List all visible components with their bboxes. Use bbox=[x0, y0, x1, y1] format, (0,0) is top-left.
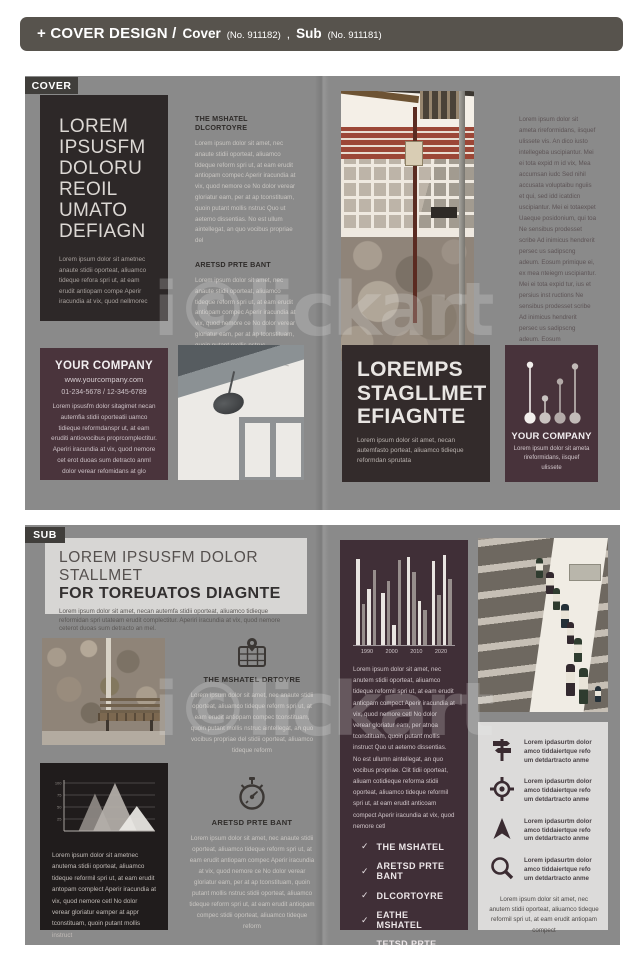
photo-window bbox=[239, 417, 304, 480]
header-cover-label: Cover bbox=[182, 26, 220, 41]
icon-text-row: Lorem ipdasurtm dolor amco tiddaiertque … bbox=[489, 776, 599, 804]
svg-text:25: 25 bbox=[57, 817, 62, 822]
title-line: EFIAGNTE bbox=[357, 405, 490, 429]
section-heading: ARETSD PRTE BANT bbox=[195, 260, 301, 269]
sub-header-body: Lorem ipsum dolor sit amet, necan autemf… bbox=[59, 608, 293, 634]
header-separator: , bbox=[287, 27, 290, 41]
magnifier-icon bbox=[489, 855, 515, 881]
company-name: YOUR COMPANY bbox=[40, 360, 168, 372]
loremps-body: Lorem ipsum dolor sit amet, necan autemf… bbox=[357, 436, 475, 466]
section-heading: ARETSD PRTE BANT bbox=[182, 818, 322, 827]
icon-row-text: Lorem ipdasurtm dolor amco tiddaiertque … bbox=[524, 855, 599, 883]
lollipop-chart-icon bbox=[521, 354, 583, 428]
company-body: Lorem ipsum dolor sit ameta rireformidan… bbox=[505, 445, 598, 473]
svg-text:100: 100 bbox=[55, 781, 62, 786]
photo-stone-block-wall bbox=[341, 159, 474, 231]
photo-rock-foundation bbox=[341, 237, 474, 361]
company-name: YOUR COMPANY bbox=[505, 431, 598, 442]
photo-plaque bbox=[569, 564, 601, 581]
title-line: UMATO bbox=[59, 200, 168, 221]
title-line: LOREM bbox=[59, 116, 168, 137]
checklist-item: ✓ EATHE MSHATEL bbox=[361, 910, 455, 930]
check-icon: ✓ bbox=[361, 944, 369, 945]
sub-bar-chart: 1990200020102020 bbox=[353, 554, 455, 655]
checklist-item: ✓ THE MSHATEL bbox=[361, 841, 455, 852]
checklist-item: ✓ DLCORTOYRE bbox=[361, 890, 455, 901]
right-panel-footer: Lorem ipsum dolor sit amet, nec anutem s… bbox=[489, 895, 599, 937]
photo-bottle bbox=[566, 664, 575, 696]
checklist-label: TETSD PRTE BANT bbox=[377, 939, 455, 945]
checklist-label: EATHE MSHATEL bbox=[377, 910, 455, 930]
checklist-label: ARETSD PRTE BANT bbox=[377, 861, 455, 881]
header-bar: + COVER DESIGN / Cover (No. 911182) , Su… bbox=[20, 17, 623, 51]
photo-bottle bbox=[579, 668, 588, 704]
template-preview-page: + COVER DESIGN / Cover (No. 911182) , Su… bbox=[0, 0, 640, 958]
sub-right-panel: Lorem ipdasurtm dolor amco tiddaiertque … bbox=[478, 722, 608, 930]
page-fold bbox=[315, 76, 329, 510]
cover-spread: i©lickart LOREM IPSUSFM DOLORU REOIL UMA… bbox=[25, 76, 620, 510]
header-sub-number: (No. 911181) bbox=[328, 30, 382, 41]
check-icon: ✓ bbox=[361, 915, 369, 926]
cover-tab-label: COVER bbox=[25, 77, 78, 94]
signpost-icon bbox=[489, 737, 515, 763]
title-line: REOIL bbox=[59, 179, 168, 200]
navigation-arrow-icon bbox=[489, 816, 515, 842]
company-url: www.yourcompany.com bbox=[40, 375, 168, 384]
check-icon: ✓ bbox=[361, 841, 369, 852]
stone-wall-bench-photo bbox=[42, 638, 165, 745]
sub-title-line1: LOREM IPSUSFM DOLOR STALLMET bbox=[59, 549, 293, 585]
photo-bench-back bbox=[100, 698, 160, 713]
photo-bottle bbox=[567, 622, 574, 644]
sub-header-box: LOREM IPSUSFM DOLOR STALLMET FOR TOREUAT… bbox=[45, 538, 307, 614]
title-line: IPSUSFM bbox=[59, 137, 168, 158]
stopwatch-icon bbox=[235, 776, 269, 812]
svg-text:50: 50 bbox=[57, 805, 62, 810]
sub-title-line2: FOR TOREUATOS DIAGNTE bbox=[59, 585, 293, 603]
photo-utility-pole bbox=[459, 91, 465, 361]
loremps-panel: LOREMPS STAGLLMET EFIAGNTE Lorem ipsum d… bbox=[342, 345, 490, 482]
chart-panel-body: Lorem ipsum dolor sit ametnec anutema st… bbox=[49, 850, 159, 941]
bar-chart-bars bbox=[353, 554, 455, 646]
map-section: THE MSHATEL DRTOYRE Lorem ipsum dolor si… bbox=[182, 637, 322, 756]
icon-row-text: Lorem ipdasurtm dolor amco tiddaiertque … bbox=[524, 816, 599, 844]
sub-middle-column: THE MSHATEL DRTOYRE Lorem ipsum dolor si… bbox=[182, 637, 322, 932]
triangle-chart-panel: 100755025 Lorem ipsum dolor sit ametnec … bbox=[40, 763, 168, 930]
photo-ground bbox=[42, 731, 165, 745]
company-info-panel: YOUR COMPANY www.yourcompany.com 01-234-… bbox=[40, 348, 168, 480]
photo-plaque bbox=[431, 207, 457, 218]
checklist-label: THE MSHATEL bbox=[377, 842, 445, 852]
company-body: Lorem ipsusfm dolor sitagimet necan aute… bbox=[40, 402, 168, 478]
header-cover-number: (No. 911182) bbox=[227, 30, 281, 41]
company-panel-2: YOUR COMPANY Lorem ipsum dolor sit ameta… bbox=[505, 345, 598, 482]
check-icon: ✓ bbox=[361, 890, 369, 901]
photo-bottle bbox=[536, 558, 543, 578]
header-sub-label: Sub bbox=[296, 26, 322, 41]
icon-text-row: Lorem ipdasurtm dolor amco tiddaiertque … bbox=[489, 855, 599, 883]
triangle-area-chart: 100755025 bbox=[49, 775, 159, 837]
eave-speaker-photo bbox=[178, 345, 304, 480]
cover-title-panel-body: Lorem ipsum dolor sit ametnec anaute sti… bbox=[59, 255, 155, 308]
map-pin-icon bbox=[236, 637, 268, 669]
cover-main-title: LOREM IPSUSFM DOLORU REOIL UMATO DEFIAGN bbox=[59, 116, 168, 242]
check-icon: ✓ bbox=[361, 866, 369, 877]
section-body: Lorem ipsum dolor sit amet, nec anaute s… bbox=[182, 690, 322, 756]
photo-downpipe bbox=[413, 107, 417, 323]
title-line: DEFIAGN bbox=[59, 221, 168, 242]
loremps-title: LOREMPS STAGLLMET EFIAGNTE bbox=[357, 358, 490, 429]
checklist-label: DLCORTOYRE bbox=[377, 891, 444, 901]
section-body: Lorem ipsum dolor sit amet, nec anaute s… bbox=[195, 139, 301, 247]
title-line: DOLORU bbox=[59, 158, 168, 179]
company-phones: 01-234-5678 / 12-345-6789 bbox=[40, 389, 168, 396]
section-body: Lorem ipsum dolor sit amet, nec anaute s… bbox=[182, 833, 322, 932]
photo-bottle bbox=[595, 686, 601, 702]
stopwatch-section: ARETSD PRTE BANT Lorem ipsum dolor sit a… bbox=[182, 776, 322, 932]
section-heading: THE MSHATEL DRTOYRE bbox=[182, 675, 322, 684]
checklist-item: ✓ ARETSD PRTE BANT bbox=[361, 861, 455, 881]
photo-bottle bbox=[553, 588, 560, 610]
cover-middle-column: THE MSHATEL DLCORTOYRE Lorem ipsum dolor… bbox=[195, 114, 301, 365]
icon-row-text: Lorem ipdasurtm dolor amco tiddaiertque … bbox=[524, 737, 599, 765]
center-panel-body: Lorem ipsum dolor sit amet, nec anutem s… bbox=[353, 664, 455, 832]
photo-bottle bbox=[574, 638, 582, 662]
icon-text-row: Lorem ipdasurtm dolor amco tiddaiertque … bbox=[489, 816, 599, 844]
icon-row-text: Lorem ipdasurtm dolor amco tiddaiertque … bbox=[524, 776, 599, 804]
sub-tab-label: SUB bbox=[25, 527, 65, 543]
title-line: LOREMPS bbox=[357, 358, 490, 382]
photo-roof-eave bbox=[178, 345, 304, 399]
cover-title-panel: LOREM IPSUSFM DOLORU REOIL UMATO DEFIAGN… bbox=[40, 95, 168, 321]
checklist-item: ✓ TETSD PRTE BANT bbox=[361, 939, 455, 945]
photo-horn-speaker bbox=[211, 390, 246, 417]
icon-text-row: Lorem ipdasurtm dolor amco tiddaiertque … bbox=[489, 737, 599, 765]
cover-right-column: Lorem ipsum dolor sit ameta rireformidan… bbox=[519, 114, 597, 345]
sub-center-panel: 1990200020102020 Lorem ipsum dolor sit a… bbox=[340, 540, 468, 930]
checklist: ✓ THE MSHATEL ✓ ARETSD PRTE BANT ✓ DLCOR… bbox=[353, 841, 455, 945]
svg-text:75: 75 bbox=[57, 793, 62, 798]
section-heading: THE MSHATEL DLCORTOYRE bbox=[195, 114, 301, 132]
stairs-bottles-photo bbox=[478, 538, 608, 712]
target-icon bbox=[489, 776, 515, 802]
photo-meter-box bbox=[405, 141, 423, 166]
header-title: + COVER DESIGN / bbox=[37, 25, 176, 42]
hanok-wall-photo bbox=[341, 91, 474, 361]
sub-spread: i©lickart LOREM IPSUSFM DOLOR STALLMET F… bbox=[25, 525, 620, 945]
bar-chart-labels: 1990200020102020 bbox=[353, 649, 455, 655]
title-line: STAGLLMET bbox=[357, 382, 490, 406]
section-body: Lorem ipsum dolor sit amet, nec anaute s… bbox=[195, 276, 301, 352]
photo-window-lattice bbox=[420, 91, 460, 119]
